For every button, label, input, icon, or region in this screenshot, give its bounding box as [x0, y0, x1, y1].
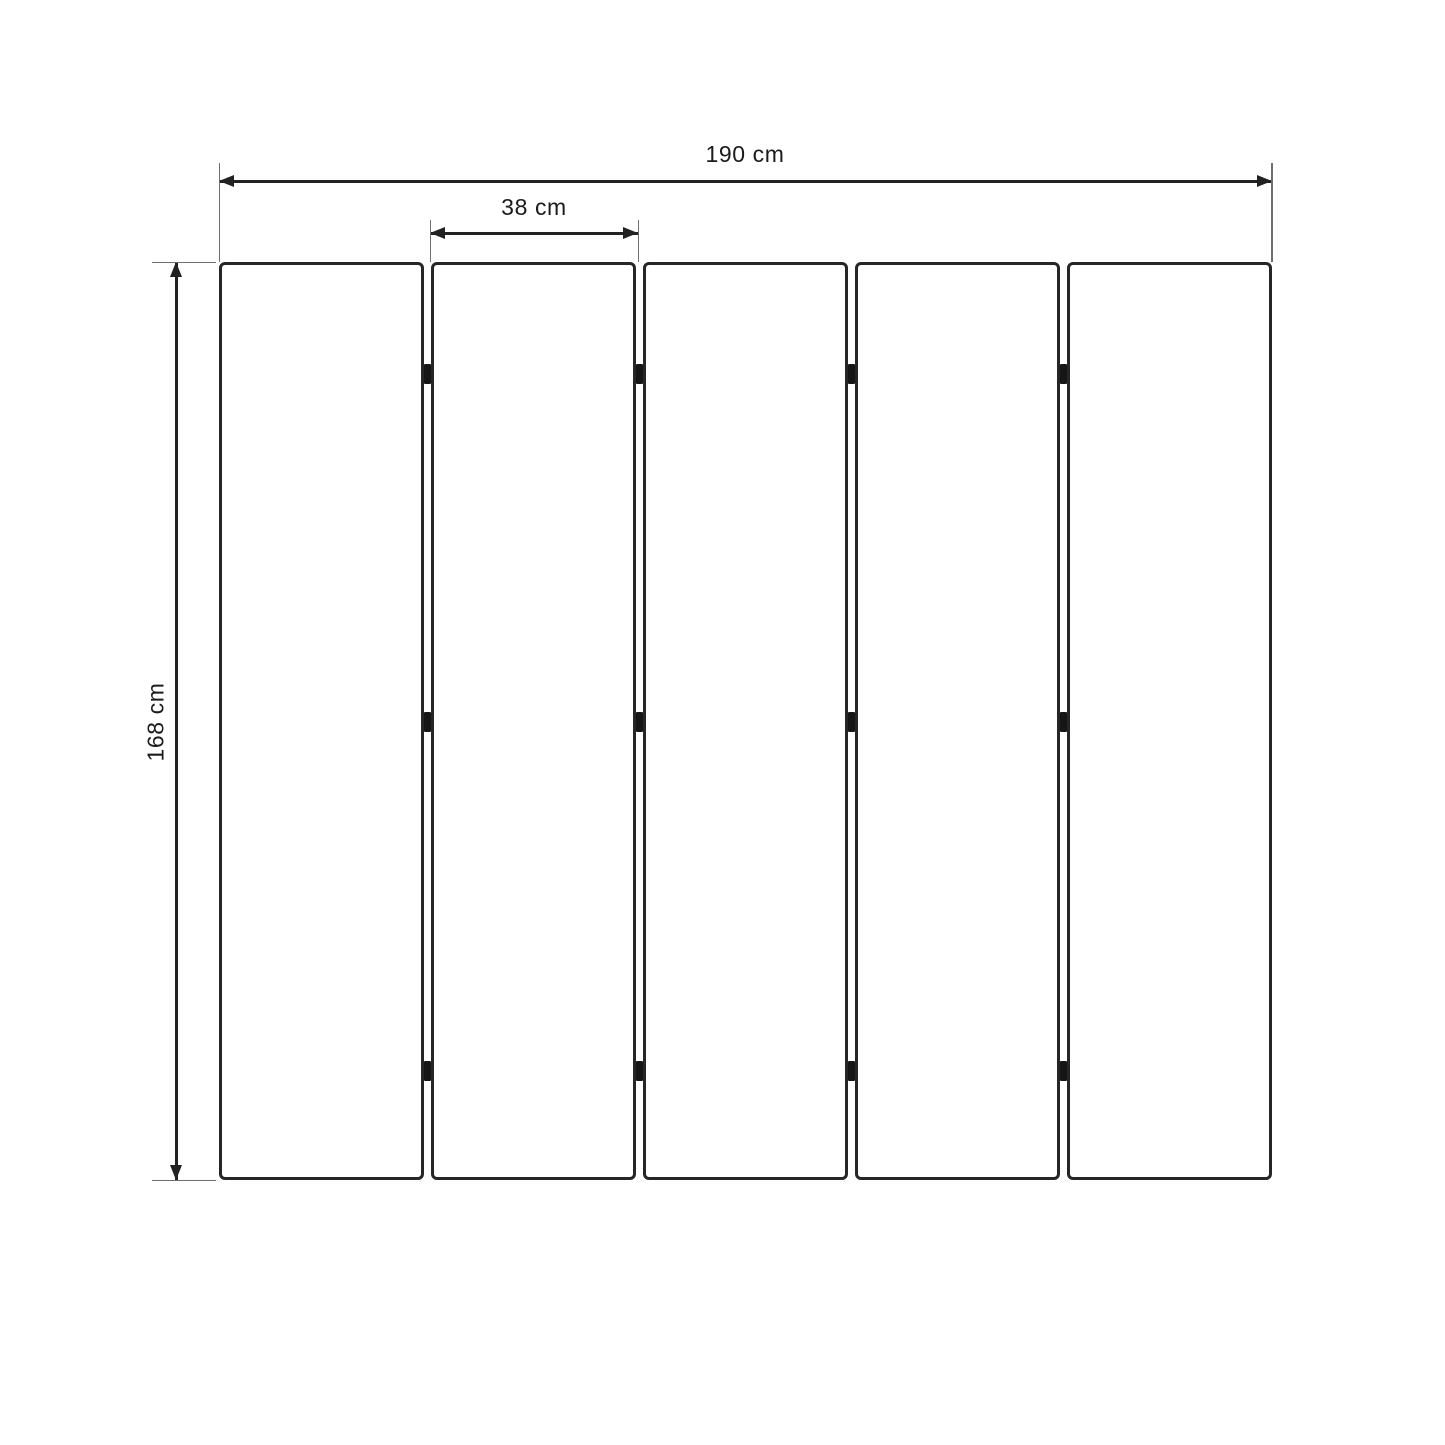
hinge-icon	[848, 364, 855, 384]
hinge-icon	[424, 1061, 431, 1081]
hinge-icon	[424, 364, 431, 384]
dimension-diagram: 190 cm 38 cm 168 cm	[0, 0, 1445, 1445]
hinge-icon	[636, 1061, 643, 1081]
panel-group	[219, 262, 1272, 1180]
total-width-arrow	[219, 180, 1272, 183]
panel-2	[431, 262, 636, 1180]
hinge-icon	[424, 712, 431, 732]
panel-5	[1067, 262, 1272, 1180]
extension-line	[638, 220, 640, 262]
extension-line	[152, 1180, 216, 1182]
panel-1	[219, 262, 424, 1180]
hinge-icon	[1060, 364, 1067, 384]
panel-width-label: 38 cm	[501, 196, 567, 219]
panel-4	[855, 262, 1060, 1180]
hinge-icon	[636, 364, 643, 384]
hinge-icon	[636, 712, 643, 732]
hinge-icon	[848, 712, 855, 732]
extension-line	[152, 262, 216, 264]
total-width-label: 190 cm	[705, 143, 784, 166]
extension-line	[219, 163, 221, 262]
height-label: 168 cm	[145, 682, 168, 761]
extension-line	[430, 220, 432, 262]
hinge-icon	[1060, 712, 1067, 732]
hinge-icon	[1060, 1061, 1067, 1081]
height-arrow	[175, 262, 178, 1180]
panel-width-arrow	[430, 232, 638, 235]
panel-3	[643, 262, 848, 1180]
hinge-icon	[848, 1061, 855, 1081]
extension-line	[1271, 163, 1273, 262]
